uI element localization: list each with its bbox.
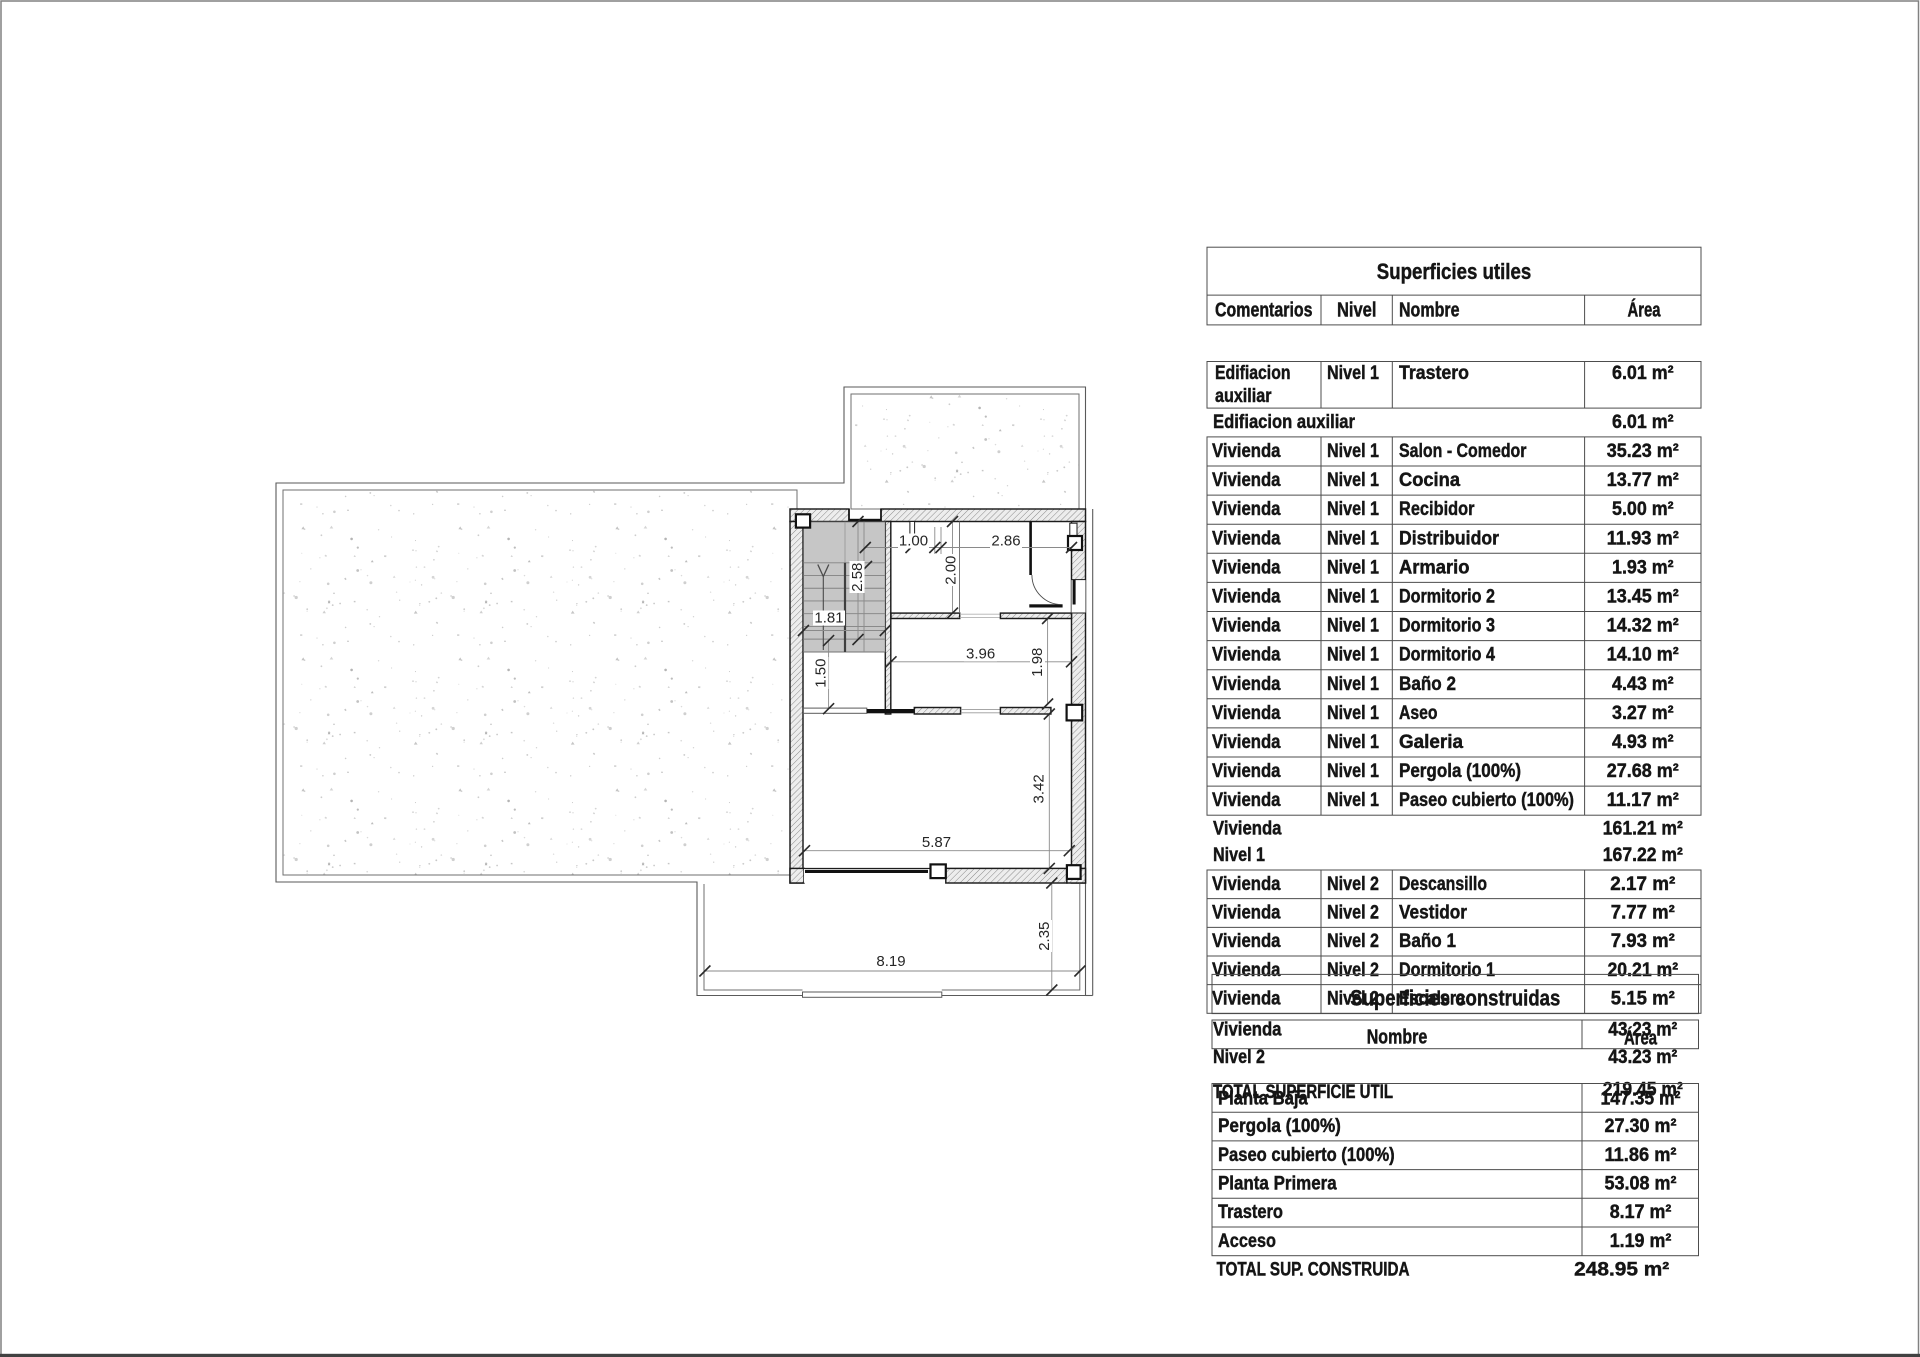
svg-text:8.17 m²: 8.17 m² xyxy=(1610,1202,1672,1223)
svg-text:Vivienda: Vivienda xyxy=(1212,874,1281,895)
svg-text:Planta Baja: Planta Baja xyxy=(1218,1089,1308,1110)
svg-text:8.19: 8.19 xyxy=(876,953,905,970)
svg-text:Nivel 1: Nivel 1 xyxy=(1327,761,1379,782)
svg-text:11.93 m²: 11.93 m² xyxy=(1607,528,1679,549)
svg-text:Edifiacion: Edifiacion xyxy=(1215,363,1291,384)
svg-text:Pergola (100%): Pergola (100%) xyxy=(1218,1116,1341,1137)
svg-text:Aseo: Aseo xyxy=(1399,703,1438,724)
svg-text:Nivel 2: Nivel 2 xyxy=(1327,960,1379,981)
svg-text:Nivel 2: Nivel 2 xyxy=(1327,874,1379,895)
svg-text:5.00 m²: 5.00 m² xyxy=(1612,499,1674,520)
svg-text:3.96: 3.96 xyxy=(966,646,995,663)
svg-text:4.93 m²: 4.93 m² xyxy=(1612,732,1674,753)
svg-text:Nivel 1: Nivel 1 xyxy=(1327,732,1379,753)
svg-text:Nombre: Nombre xyxy=(1399,299,1460,321)
svg-text:4.43 m²: 4.43 m² xyxy=(1612,674,1674,695)
svg-text:Nivel 2: Nivel 2 xyxy=(1213,1047,1265,1068)
svg-text:7.93 m²: 7.93 m² xyxy=(1611,931,1675,952)
svg-text:2.58: 2.58 xyxy=(849,563,866,592)
svg-text:Nivel 1: Nivel 1 xyxy=(1327,674,1379,695)
svg-text:Cocina: Cocina xyxy=(1399,470,1460,491)
svg-text:6.01 m²: 6.01 m² xyxy=(1612,412,1674,433)
svg-text:13.45 m²: 13.45 m² xyxy=(1607,586,1679,607)
svg-text:Dormitorio 3: Dormitorio 3 xyxy=(1399,616,1495,637)
svg-text:3.27 m²: 3.27 m² xyxy=(1612,703,1674,724)
svg-text:Vivienda: Vivienda xyxy=(1212,616,1281,637)
svg-text:Vivienda: Vivienda xyxy=(1212,470,1281,491)
svg-text:Distribuidor: Distribuidor xyxy=(1399,528,1500,549)
svg-text:14.10 m²: 14.10 m² xyxy=(1607,645,1679,666)
svg-text:Baño 1: Baño 1 xyxy=(1399,931,1456,952)
svg-text:Vivienda: Vivienda xyxy=(1213,818,1282,839)
svg-text:Dormitorio 4: Dormitorio 4 xyxy=(1399,645,1495,666)
svg-text:161.21 m²: 161.21 m² xyxy=(1603,818,1683,839)
svg-text:Vivienda: Vivienda xyxy=(1213,1019,1282,1040)
svg-text:11.17 m²: 11.17 m² xyxy=(1607,790,1679,811)
svg-text:13.77 m²: 13.77 m² xyxy=(1607,470,1679,491)
svg-text:Dormitorio 1: Dormitorio 1 xyxy=(1399,960,1495,981)
svg-text:Vivienda: Vivienda xyxy=(1212,645,1281,666)
svg-text:Nombre: Nombre xyxy=(1367,1027,1428,1049)
svg-text:1.19 m²: 1.19 m² xyxy=(1610,1231,1672,1252)
svg-text:Vivienda: Vivienda xyxy=(1212,931,1281,952)
svg-text:TOTAL SUP. CONSTRUIDA: TOTAL SUP. CONSTRUIDA xyxy=(1217,1259,1410,1280)
svg-text:Paseo cubierto (100%): Paseo cubierto (100%) xyxy=(1399,790,1574,811)
svg-text:5.87: 5.87 xyxy=(922,834,951,851)
svg-text:Nivel 1: Nivel 1 xyxy=(1327,703,1379,724)
svg-text:11.86 m²: 11.86 m² xyxy=(1605,1145,1677,1166)
svg-text:Recibidor: Recibidor xyxy=(1399,499,1475,520)
svg-text:2.00: 2.00 xyxy=(943,556,960,585)
svg-text:Vivienda: Vivienda xyxy=(1212,732,1281,753)
svg-text:Nivel 2: Nivel 2 xyxy=(1327,902,1379,923)
svg-text:Vivienda: Vivienda xyxy=(1212,674,1281,695)
svg-text:Galeria: Galeria xyxy=(1399,732,1463,753)
svg-text:Armario: Armario xyxy=(1399,557,1470,578)
svg-text:Vestidor: Vestidor xyxy=(1399,902,1468,923)
svg-text:2.17 m²: 2.17 m² xyxy=(1610,874,1675,895)
svg-text:147.35 m²: 147.35 m² xyxy=(1601,1089,1681,1110)
svg-text:Acceso: Acceso xyxy=(1218,1231,1276,1252)
svg-text:1.00: 1.00 xyxy=(899,533,928,550)
svg-text:Pergola (100%): Pergola (100%) xyxy=(1399,761,1521,782)
svg-text:Nivel 1: Nivel 1 xyxy=(1327,616,1379,637)
svg-text:Vivienda: Vivienda xyxy=(1212,790,1281,811)
svg-text:53.08 m²: 53.08 m² xyxy=(1605,1173,1677,1194)
svg-text:Vivienda: Vivienda xyxy=(1212,902,1281,923)
svg-text:Superficies utiles: Superficies utiles xyxy=(1377,259,1532,284)
svg-text:Nivel 1: Nivel 1 xyxy=(1327,499,1379,520)
svg-text:Nivel 1: Nivel 1 xyxy=(1327,363,1379,384)
svg-text:Nivel 1: Nivel 1 xyxy=(1327,790,1379,811)
svg-text:Edifiacion auxiliar: Edifiacion auxiliar xyxy=(1213,412,1356,433)
svg-text:Vivienda: Vivienda xyxy=(1212,557,1281,578)
svg-text:Vivienda: Vivienda xyxy=(1212,586,1281,607)
svg-text:Nivel 1: Nivel 1 xyxy=(1327,441,1379,462)
svg-text:Vivienda: Vivienda xyxy=(1212,528,1281,549)
svg-text:Vivienda: Vivienda xyxy=(1212,960,1281,981)
svg-text:14.32 m²: 14.32 m² xyxy=(1607,616,1679,637)
svg-text:Paseo cubierto (100%): Paseo cubierto (100%) xyxy=(1218,1145,1395,1166)
svg-text:27.30 m²: 27.30 m² xyxy=(1605,1116,1677,1137)
svg-text:35.23 m²: 35.23 m² xyxy=(1607,441,1679,462)
svg-text:Planta Primera: Planta Primera xyxy=(1218,1173,1337,1194)
svg-text:1.81: 1.81 xyxy=(814,610,843,627)
svg-text:Trastero: Trastero xyxy=(1218,1202,1283,1223)
svg-text:Vivienda: Vivienda xyxy=(1212,703,1281,724)
svg-text:20.21 m²: 20.21 m² xyxy=(1607,960,1678,981)
svg-text:Superficies construidas: Superficies construidas xyxy=(1350,986,1560,1011)
svg-text:Nivel 1: Nivel 1 xyxy=(1327,557,1379,578)
svg-text:Baño 2: Baño 2 xyxy=(1399,674,1456,695)
svg-text:2.35: 2.35 xyxy=(1036,922,1053,951)
svg-text:Descansillo: Descansillo xyxy=(1399,874,1487,895)
svg-text:Nivel 1: Nivel 1 xyxy=(1327,645,1379,666)
svg-text:Nivel 1: Nivel 1 xyxy=(1327,470,1379,491)
svg-text:Área: Área xyxy=(1628,298,1662,321)
svg-text:1.50: 1.50 xyxy=(812,658,829,687)
svg-text:Nivel: Nivel xyxy=(1337,299,1377,321)
svg-text:43.23 m²: 43.23 m² xyxy=(1608,1047,1677,1068)
svg-text:Dormitorio 2: Dormitorio 2 xyxy=(1399,586,1495,607)
svg-text:6.01 m²: 6.01 m² xyxy=(1612,363,1674,384)
svg-text:3.42: 3.42 xyxy=(1030,774,1047,803)
svg-text:167.22 m²: 167.22 m² xyxy=(1603,845,1683,866)
svg-text:Comentarios: Comentarios xyxy=(1215,299,1313,321)
svg-text:7.77 m²: 7.77 m² xyxy=(1611,902,1675,923)
svg-text:Área: Área xyxy=(1624,1027,1658,1050)
svg-text:2.86: 2.86 xyxy=(991,533,1020,550)
svg-text:Trastero: Trastero xyxy=(1399,363,1469,384)
svg-text:Vivienda: Vivienda xyxy=(1212,761,1281,782)
svg-text:Salon - Comedor: Salon - Comedor xyxy=(1399,441,1527,462)
svg-text:auxiliar: auxiliar xyxy=(1215,386,1272,407)
svg-text:Nivel 1: Nivel 1 xyxy=(1213,845,1265,866)
svg-text:Vivienda: Vivienda xyxy=(1212,441,1281,462)
svg-text:Nivel 1: Nivel 1 xyxy=(1327,528,1379,549)
svg-text:Nivel 2: Nivel 2 xyxy=(1327,931,1379,952)
svg-text:Nivel 1: Nivel 1 xyxy=(1327,586,1379,607)
svg-text:27.68 m²: 27.68 m² xyxy=(1607,761,1679,782)
svg-text:Vivienda: Vivienda xyxy=(1212,988,1281,1009)
svg-text:Vivienda: Vivienda xyxy=(1212,499,1281,520)
svg-text:1.98: 1.98 xyxy=(1029,648,1046,677)
svg-text:248.95 m²: 248.95 m² xyxy=(1574,1259,1669,1280)
svg-text:5.15 m²: 5.15 m² xyxy=(1611,988,1675,1009)
svg-text:1.93 m²: 1.93 m² xyxy=(1612,557,1674,578)
